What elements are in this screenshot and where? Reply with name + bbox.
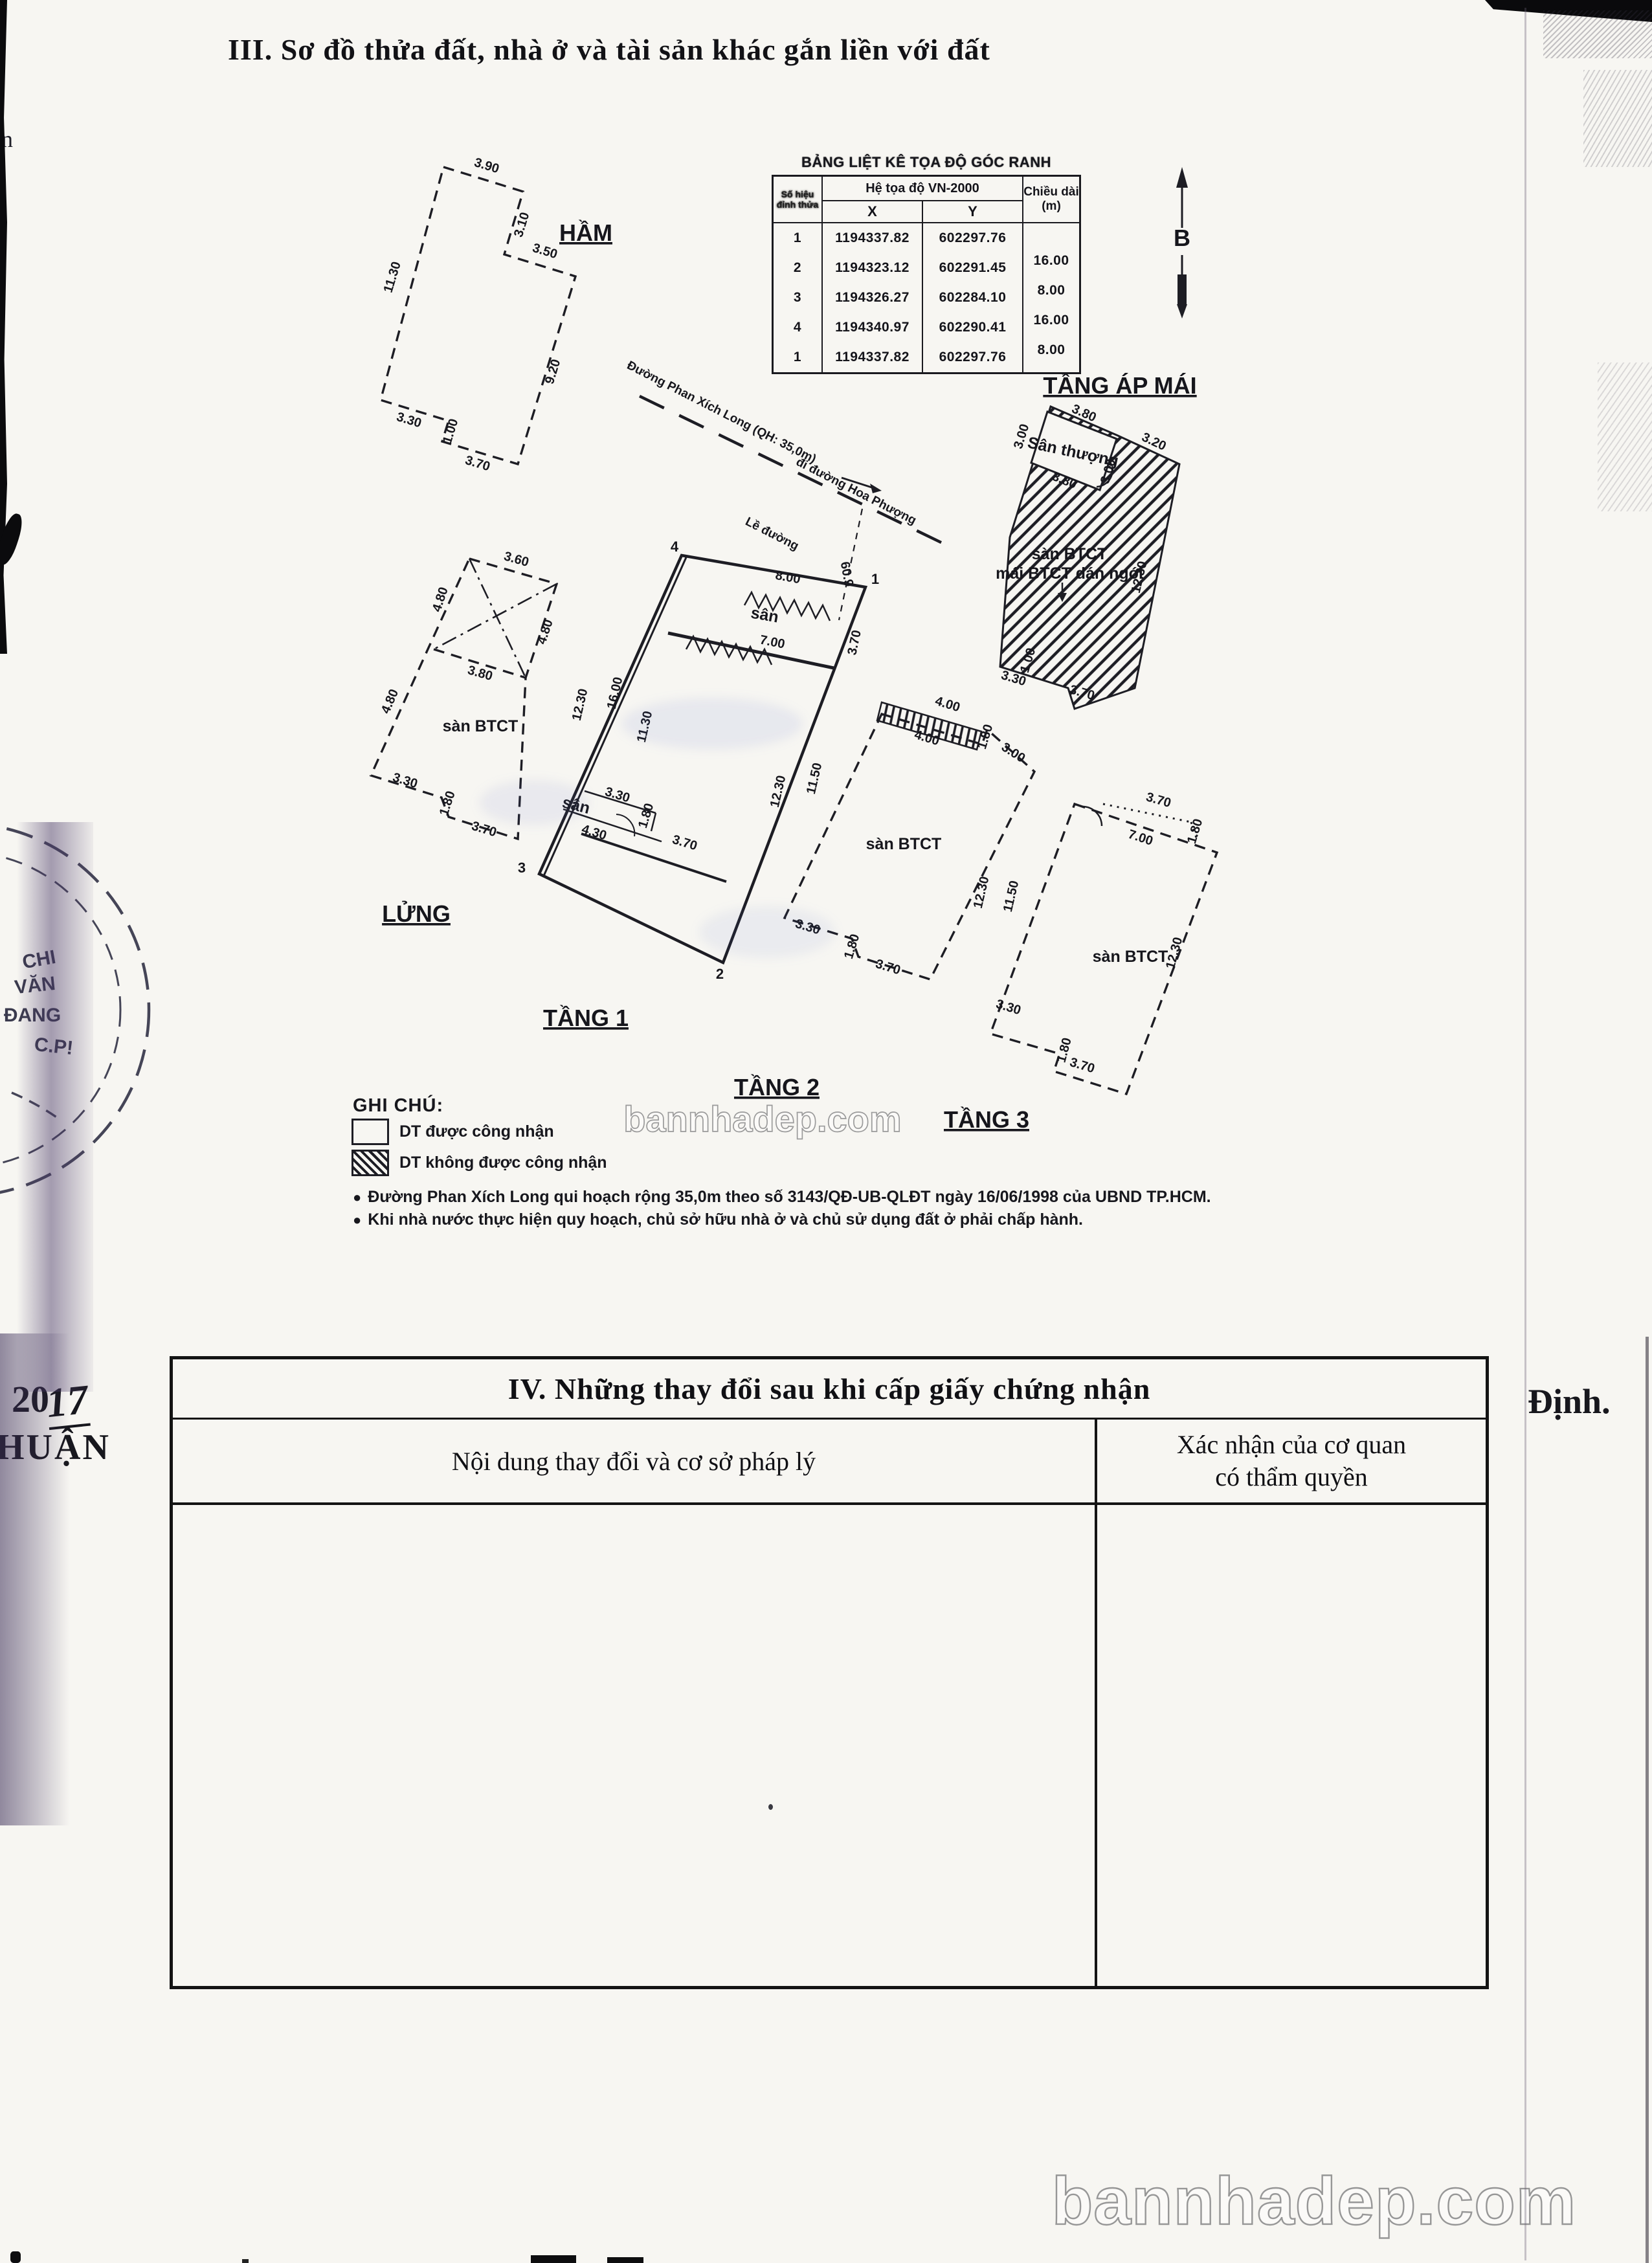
section4-col1-header: Nội dung thay đổi và cơ sở pháp lý bbox=[173, 1420, 1097, 1502]
scan-shadow-left bbox=[0, 1333, 70, 1825]
scan-smudge bbox=[699, 906, 835, 958]
coord-stt-cells: 1 2 3 4 1 bbox=[773, 223, 823, 373]
dimension-label: 4.80 bbox=[379, 687, 401, 715]
area-label: sàn BTCT bbox=[1093, 948, 1168, 966]
street-line bbox=[640, 396, 946, 545]
dimension-label: 1.00 bbox=[440, 417, 461, 445]
dimension-label: 3.10 bbox=[511, 210, 532, 239]
street-label: Đường Phan Xích Long (QH: 35,0m) bbox=[625, 359, 818, 466]
coord-x-cells: 1194337.82 1194323.12 1194326.27 1194340… bbox=[822, 223, 922, 373]
dimension-label: 3.90 bbox=[473, 155, 501, 176]
dimension-label: 1.80 bbox=[636, 801, 656, 830]
coord-col-stt: Số hiệuđỉnh thửa bbox=[773, 176, 823, 223]
floor-label: TẦNG 1 bbox=[543, 1005, 629, 1031]
watermark-middle: bannhadep.com bbox=[623, 1098, 901, 1139]
floor-label: TẦNG 3 bbox=[944, 1106, 1029, 1133]
dimension-label: 1.80 bbox=[437, 789, 458, 818]
dimension-label: 16.00 bbox=[605, 676, 626, 711]
legend-swatch-white bbox=[352, 1119, 389, 1145]
dimension-label: 8.00 bbox=[774, 568, 801, 586]
scan-shadow-left bbox=[17, 822, 93, 1392]
dimension-label: 9.20 bbox=[542, 357, 563, 386]
dimension-label: 4.30 bbox=[580, 822, 608, 843]
coord-col-sys: Hệ tọa độ VN-2000 bbox=[822, 176, 1023, 201]
dimension-label: 3.30 bbox=[391, 770, 419, 791]
legend-item-unrecognized: DT không được công nhận bbox=[352, 1150, 607, 1176]
dimension-label: 11.30 bbox=[381, 260, 404, 295]
tang1-plan bbox=[539, 555, 865, 963]
floor-label: LỬNG bbox=[382, 900, 451, 927]
dimension-label: 12.30 bbox=[1163, 935, 1185, 970]
floor-label: HẦM bbox=[559, 219, 612, 246]
dimension-label: 3.60 bbox=[502, 549, 530, 570]
corner-label: 4 bbox=[671, 539, 679, 555]
scan-smudge bbox=[621, 698, 803, 750]
dimension-label: 3.50 bbox=[531, 241, 559, 262]
coord-col-len: Chiều dài(m) bbox=[1023, 176, 1080, 223]
dimension-label: 3.70 bbox=[463, 453, 492, 474]
dimension-label: 12.30 bbox=[570, 687, 591, 722]
floor-label: TẦNG ÁP MÁI bbox=[1043, 372, 1196, 399]
scan-grain bbox=[1598, 362, 1652, 511]
area-label: sân bbox=[750, 604, 780, 627]
dimension-label: 3.30 bbox=[603, 785, 632, 805]
scan-artifact bbox=[531, 2255, 576, 2263]
street-label: đi đường Hoa Phượng bbox=[794, 455, 919, 528]
watermark-bottom: bannhadep.com bbox=[1052, 2164, 1576, 2239]
section4-body-left bbox=[173, 1505, 1097, 1986]
dimension-label: 4.80 bbox=[430, 585, 451, 614]
scan-artifact bbox=[607, 2257, 643, 2263]
plan-notes: ●Đường Phan Xích Long qui hoạch rộng 35,… bbox=[353, 1186, 1324, 1231]
scan-smudge bbox=[479, 780, 589, 825]
section4-table: IV. Những thay đổi sau khi cấp giấy chứn… bbox=[170, 1356, 1489, 1989]
area-label: sàn BTCT bbox=[866, 835, 942, 853]
dimension-label: 11.50 bbox=[804, 761, 825, 796]
coord-col-y: Y bbox=[922, 201, 1023, 223]
dimension-label: 3.30 bbox=[994, 997, 1023, 1018]
area-label: sàn BTCT bbox=[1032, 545, 1108, 563]
scan-artifact bbox=[10, 2251, 21, 2263]
dimension-label: 3.70 bbox=[1068, 1055, 1097, 1076]
scan-grain bbox=[1543, 10, 1652, 58]
dimension-label: 3.70 bbox=[470, 819, 498, 840]
area-label: mái BTCT dán ngói bbox=[996, 564, 1143, 583]
section4-col2-header: Xác nhận của cơ quan có thẩm quyền bbox=[1097, 1420, 1486, 1502]
scan-artifact bbox=[768, 1804, 773, 1810]
dimension-label: 4.00 bbox=[933, 694, 962, 715]
scanned-page: CHI VĂN ĐANG C.P! Đường Phan Xích Long (… bbox=[0, 0, 1652, 2263]
area-label: sàn BTCT bbox=[443, 717, 519, 735]
coord-length-cells: 16.00 8.00 16.00 8.00 bbox=[1023, 223, 1080, 373]
coord-table: BẢNG LIỆT KÊ TỌA ĐỘ GÓC RANH Số hiệuđỉnh… bbox=[772, 154, 1081, 374]
page-title: III. Sơ đồ thửa đất, nhà ở và tài sản kh… bbox=[228, 32, 1238, 67]
coord-y-cells: 602297.76 602291.45 602284.10 602290.41 … bbox=[922, 223, 1023, 373]
margin-word-right: Định. bbox=[1528, 1381, 1611, 1421]
bullet-icon: ● bbox=[353, 1189, 361, 1205]
floor-label: TẦNG 2 bbox=[734, 1074, 820, 1100]
legend-title: GHI CHÚ: bbox=[353, 1095, 443, 1117]
scan-grain bbox=[1583, 70, 1652, 167]
dimension-label: 4.80 bbox=[535, 618, 556, 646]
corner-label: 3 bbox=[518, 860, 526, 876]
dimension-label: 12.30 bbox=[768, 774, 789, 809]
dimension-label: 11.50 bbox=[1001, 879, 1021, 913]
north-label: B bbox=[1174, 225, 1190, 251]
dimension-label: 7.00 bbox=[759, 633, 786, 652]
corner-label: 2 bbox=[716, 966, 724, 982]
dimension-label: 3.30 bbox=[395, 410, 423, 430]
scan-artifact bbox=[242, 2259, 249, 2263]
page-edge-right bbox=[1646, 1337, 1649, 2263]
bullet-icon: ● bbox=[353, 1212, 361, 1228]
dimension-label: 12.30 bbox=[971, 875, 992, 910]
page-fold-line bbox=[1524, 8, 1526, 2260]
dimension-label: 3.70 bbox=[874, 957, 902, 977]
dimension-label: 3.70 bbox=[1144, 790, 1172, 810]
corner-label: 1 bbox=[871, 571, 879, 587]
dimension-label: 1.80 bbox=[975, 722, 996, 751]
section4-body-right bbox=[1097, 1505, 1486, 1986]
legend-swatch-hatched bbox=[352, 1150, 389, 1176]
dimension-label: 3.70 bbox=[671, 832, 699, 853]
legend-item-recognized: DT được công nhận bbox=[352, 1119, 554, 1145]
coord-col-x: X bbox=[822, 201, 922, 223]
street-label: Lề đường bbox=[743, 515, 801, 553]
coord-table-title: BẢNG LIỆT KÊ TỌA ĐỘ GÓC RANH bbox=[772, 154, 1081, 171]
section4-title: IV. Những thay đổi sau khi cấp giấy chứn… bbox=[173, 1359, 1486, 1420]
